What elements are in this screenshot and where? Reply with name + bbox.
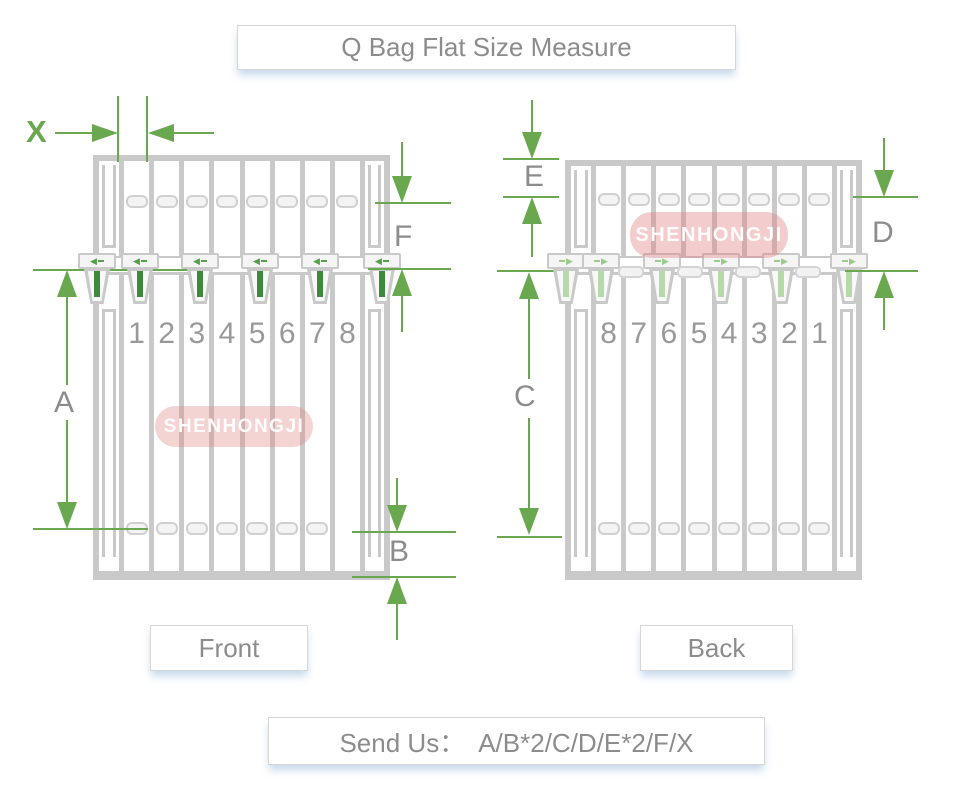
vent-hole	[658, 193, 680, 206]
fold-line	[574, 309, 588, 557]
front-flap-slot	[305, 161, 330, 256]
front-label: Front	[199, 633, 260, 664]
arrow-up-icon	[519, 272, 539, 299]
back-flap-slot	[596, 166, 621, 256]
clip-tab: ◀	[121, 253, 159, 269]
fold-line	[102, 165, 116, 248]
vent-hole	[598, 193, 620, 206]
vent-hole	[658, 522, 680, 535]
arrow-up-icon	[57, 270, 77, 297]
arrow-down-icon	[387, 505, 407, 532]
clip-arrow-right-icon: ▶	[774, 257, 788, 266]
fold-line	[368, 309, 381, 557]
clip-mini-tab	[735, 266, 761, 278]
front-body-left-edge	[99, 275, 119, 571]
vent-hole	[186, 522, 208, 535]
clip-arrow-left-icon: ◀	[313, 257, 327, 266]
fold-line	[102, 309, 116, 557]
arrow-up-icon	[392, 269, 412, 296]
clip-tab: ◀	[363, 253, 401, 269]
vent-hole	[778, 193, 800, 206]
back-flap-slot	[807, 166, 832, 256]
send-us-box: Send Us： A/B*2/C/D/E*2/F/X	[268, 717, 765, 765]
slider-clip: ▶	[582, 253, 620, 304]
clip-arrow-left-icon: ◀	[375, 257, 389, 266]
vent-hole	[246, 195, 268, 208]
vent-hole	[748, 522, 770, 535]
back-bag: 8 7 6 5 4 3 2 1 ▶ ▶ ▶	[565, 160, 862, 580]
slider-clip: ◀	[241, 253, 279, 304]
front-slot-8: 8	[335, 275, 360, 571]
arrow-down-icon	[874, 170, 894, 197]
slot-number: 3	[747, 317, 772, 351]
back-body-right-edge	[837, 275, 856, 571]
slider-clip: ▶	[643, 253, 681, 304]
vent-hole	[628, 193, 650, 206]
arrow-down-icon	[57, 502, 77, 529]
arrow-right-icon	[92, 124, 118, 142]
slider-clip: ▶	[702, 253, 740, 304]
dim-d-label: D	[872, 218, 894, 248]
slot-number: 5	[245, 317, 270, 351]
dim-c-label: C	[514, 382, 536, 412]
front-flap-slot	[335, 161, 360, 256]
slot-number: 1	[124, 317, 149, 351]
back-slot-1: 1	[807, 275, 832, 571]
back-slot-3: 3	[747, 275, 772, 571]
vent-hole	[246, 522, 268, 535]
dim-e-label: E	[524, 162, 544, 192]
front-flap-slot	[275, 161, 300, 256]
clip-cone	[82, 268, 112, 304]
clip-tab: ▶	[582, 253, 620, 269]
fold-line	[574, 170, 588, 248]
slot-number: 7	[626, 317, 651, 351]
back-slot-5: 5	[686, 275, 711, 571]
clip-cone	[185, 268, 215, 304]
clip-tab: ▶	[830, 253, 868, 269]
vent-hole	[156, 195, 178, 208]
diagram-canvas: Q Bag Flat Size Measure	[0, 0, 973, 789]
clip-tab: ◀	[181, 253, 219, 269]
clip-tab: ◀	[78, 253, 116, 269]
clip-cone	[125, 268, 155, 304]
clip-tab: ◀	[301, 253, 339, 269]
clip-arrow-left-icon: ◀	[90, 257, 104, 266]
back-flap-left-edge	[571, 166, 591, 256]
clip-arrow-left-icon: ◀	[133, 257, 147, 266]
front-bag: 1 2 3 4 5 6 7 8 ◀ ◀ ◀	[93, 155, 390, 580]
vent-hole	[336, 195, 358, 208]
slot-number: 7	[305, 317, 330, 351]
front-flap-slot	[214, 161, 239, 256]
back-slot-8: 8	[596, 275, 621, 571]
vent-hole	[216, 522, 238, 535]
front-flap-slot	[124, 161, 149, 256]
slot-number: 6	[275, 317, 300, 351]
clip-cone	[586, 268, 616, 304]
vent-hole	[126, 195, 148, 208]
arrow-down-icon	[392, 176, 412, 203]
back-body-left-edge	[571, 275, 591, 571]
clip-arrow-right-icon: ▶	[594, 257, 608, 266]
fold-line	[840, 170, 853, 248]
arrow-up-icon	[387, 577, 407, 604]
watermark-text: SHENHONGJI	[635, 224, 782, 247]
clip-mini-tab	[795, 266, 821, 278]
dim-x-label: X	[26, 116, 47, 147]
slider-clip: ▶	[830, 253, 868, 304]
vent-hole	[778, 522, 800, 535]
slot-number: 3	[184, 317, 209, 351]
front-label-box: Front	[150, 625, 308, 671]
vent-hole	[598, 522, 620, 535]
front-flap-right-edge	[365, 161, 384, 256]
vent-hole	[718, 193, 740, 206]
page-title: Q Bag Flat Size Measure	[341, 32, 631, 63]
clip-cone	[834, 268, 864, 304]
arrow-up-icon	[522, 197, 542, 224]
vent-hole	[306, 522, 328, 535]
clip-cone	[706, 268, 736, 304]
slot-number: 8	[335, 317, 360, 351]
arrow-down-icon	[522, 132, 542, 159]
vent-hole	[156, 522, 178, 535]
clip-cone	[551, 268, 581, 304]
clip-tab: ◀	[241, 253, 279, 269]
front-flap	[93, 155, 390, 258]
slider-clip: ◀	[181, 253, 219, 304]
clip-cone	[245, 268, 275, 304]
slot-number: 6	[656, 317, 681, 351]
slot-number: 8	[596, 317, 621, 351]
clip-arrow-left-icon: ◀	[253, 257, 267, 266]
back-slot-4: 4	[717, 275, 742, 571]
arrow-down-icon	[519, 508, 539, 535]
vent-hole	[688, 522, 710, 535]
clip-arrow-right-icon: ▶	[842, 257, 856, 266]
vent-hole	[808, 522, 830, 535]
slider-clip: ◀	[301, 253, 339, 304]
slot-number: 2	[777, 317, 802, 351]
slider-clip: ◀	[121, 253, 159, 304]
arrow-left-icon	[148, 124, 174, 142]
back-slot-6: 6	[656, 275, 681, 571]
front-slot-1: 1	[124, 275, 149, 571]
watermark-badge: SHENHONGJI	[630, 212, 788, 258]
vent-hole	[186, 195, 208, 208]
back-label: Back	[688, 633, 746, 664]
watermark-badge: SHENHONGJI	[155, 406, 313, 447]
vent-hole	[718, 522, 740, 535]
dim-f-label: F	[394, 222, 412, 252]
vent-hole	[748, 193, 770, 206]
clip-mini-tab	[618, 266, 644, 278]
front-flap-left-edge	[99, 161, 119, 256]
back-slot-7: 7	[626, 275, 651, 571]
fold-line	[840, 309, 853, 557]
watermark-text: SHENHONGJI	[164, 416, 305, 438]
clip-cone	[305, 268, 335, 304]
clip-mini-tab	[677, 266, 703, 278]
vent-hole	[628, 522, 650, 535]
vent-hole	[276, 522, 298, 535]
slot-number: 5	[686, 317, 711, 351]
clip-arrow-left-icon: ◀	[193, 257, 207, 266]
front-body-right-edge	[365, 275, 384, 571]
front-flap-slot	[154, 161, 179, 256]
clip-cone	[766, 268, 796, 304]
slot-number: 1	[807, 317, 832, 351]
dim-a-label: A	[54, 388, 74, 418]
fold-line	[368, 165, 381, 248]
clip-cone	[647, 268, 677, 304]
front-flap-slot	[245, 161, 270, 256]
slot-number: 2	[154, 317, 179, 351]
slot-number: 4	[214, 317, 239, 351]
dim-b-label: B	[389, 537, 409, 567]
slot-number: 4	[717, 317, 742, 351]
vent-hole	[808, 193, 830, 206]
send-us-text: Send Us： A/B*2/C/D/E*2/F/X	[339, 723, 693, 760]
front-flap-slot	[184, 161, 209, 256]
clip-arrow-right-icon: ▶	[559, 257, 573, 266]
back-flap-right-edge	[837, 166, 856, 256]
clip-tab: ▶	[547, 253, 585, 269]
slider-clip: ▶	[762, 253, 800, 304]
arrow-up-icon	[874, 271, 894, 298]
slider-clip: ▶	[547, 253, 585, 304]
back-body: 8 7 6 5 4 3 2 1	[565, 272, 862, 580]
vent-hole	[688, 193, 710, 206]
title-box: Q Bag Flat Size Measure	[237, 25, 736, 70]
back-label-box: Back	[640, 625, 793, 671]
vent-hole	[306, 195, 328, 208]
back-slot-2: 2	[777, 275, 802, 571]
vent-hole	[276, 195, 298, 208]
slider-clip: ◀	[78, 253, 116, 304]
vent-hole	[216, 195, 238, 208]
